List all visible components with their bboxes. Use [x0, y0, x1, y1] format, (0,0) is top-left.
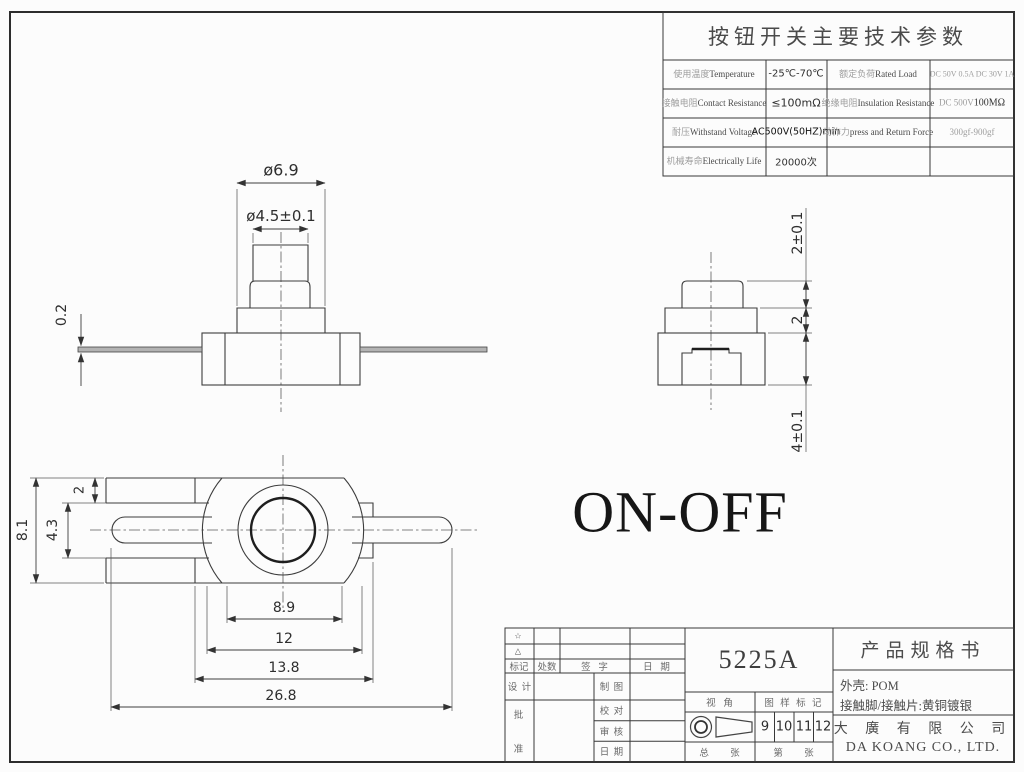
param-label-electrical-life: 机械寿命Electrically Life — [667, 156, 762, 166]
dim-side-mid-height: 2 — [790, 316, 806, 325]
total-sheet-label: 总 张 — [699, 745, 740, 759]
param-value-insulation-resistance: DC 500V100MΩ — [939, 98, 1005, 109]
on-off-label: ON-OFF — [572, 479, 788, 546]
role-approve-char1: 批 — [514, 707, 525, 721]
param-label-temperature: 使用温度Temperature — [673, 69, 754, 79]
material-contacts: 接触脚/接触片:黄铜镀银 — [840, 695, 972, 714]
revision-star: ☆ — [514, 632, 521, 641]
top-view — [30, 455, 478, 711]
dim-top-body-width: 12 — [275, 631, 293, 647]
revision-date-label: 日 期 — [643, 659, 671, 673]
param-label-operating-force: 动作力press and Return Force — [823, 127, 933, 137]
revision-count-label: 处数 — [537, 659, 556, 673]
role-approve-char2: 准 — [514, 741, 525, 755]
mark-10: 10 — [776, 720, 793, 735]
dim-top-total-height: 8.1 — [15, 519, 31, 541]
spec-title: 产品规格书 — [860, 636, 985, 663]
company-name-zh: 大 廣 有 限 公 司 — [834, 718, 1013, 738]
param-label-insulation-resistance: 绝缘电阻Insulation Resistance — [822, 98, 935, 108]
dim-top-slot-height: 4.3 — [45, 519, 61, 541]
dim-side-base-height: 4±0.1 — [790, 410, 806, 453]
mark-11: 11 — [796, 720, 813, 735]
pattern-mark-label: 图 样 标 记 — [764, 695, 823, 709]
dim-top-boss-width: 8.9 — [273, 600, 295, 616]
drawing-sheet: ø6.9 ø4.5±0.1 0.2 2±0.1 2 4±0.1 8.1 4.3 … — [0, 0, 1024, 772]
mark-12: 12 — [815, 720, 832, 735]
params-table-title: 按钮开关主要技术参数 — [708, 21, 968, 51]
dim-front-lead-thickness: 0.2 — [54, 304, 70, 326]
dim-top-body-overall: 13.8 — [268, 660, 299, 676]
param-label-contact-resistance: 接触电阻Contact Resistance — [662, 98, 767, 108]
role-proof-label: 校 对 — [600, 703, 624, 717]
projection-symbol — [691, 717, 753, 738]
revision-signature-label: 签 字 — [581, 659, 609, 673]
role-draft-label: 制 图 — [600, 679, 624, 693]
mark-9: 9 — [761, 720, 769, 735]
view-angle-label: 视 角 — [706, 695, 734, 709]
dim-front-inner-diameter: ø4.5±0.1 — [246, 207, 315, 225]
company-name-en: DA KOANG CO., LTD. — [846, 740, 1000, 756]
param-value-temperature: -25℃-70℃ — [768, 69, 823, 80]
param-label-withstand-voltage: 耐压Withstand Voltage — [672, 127, 756, 137]
revision-mark-label: 标记 — [509, 659, 528, 673]
param-value-contact-resistance: ≤100mΩ — [771, 97, 820, 110]
sheet-no-label: 第 张 — [773, 745, 814, 759]
dim-side-plunger-height: 2±0.1 — [790, 212, 806, 255]
role-review-label: 审 核 — [600, 724, 624, 738]
param-value-rated-load: DC 50V 0.5A DC 30V 1A — [930, 70, 1015, 79]
role-date-label: 日 期 — [600, 744, 624, 758]
drawing-number: 5225A — [719, 645, 800, 675]
dim-front-outer-diameter: ø6.9 — [263, 161, 298, 180]
param-label-rated-load: 额定负荷Rated Load — [839, 69, 917, 79]
side-view — [658, 208, 812, 452]
material-shell: 外壳: POM — [840, 675, 899, 694]
dim-top-edge-offset: 2 — [73, 486, 88, 494]
revision-triangle: △ — [515, 647, 521, 656]
param-value-electrical-life: 20000次 — [775, 154, 817, 169]
dim-top-total-length: 26.8 — [265, 688, 296, 704]
param-value-operating-force: 300gf-900gf — [950, 127, 995, 137]
role-design-label: 设 计 — [508, 679, 532, 693]
